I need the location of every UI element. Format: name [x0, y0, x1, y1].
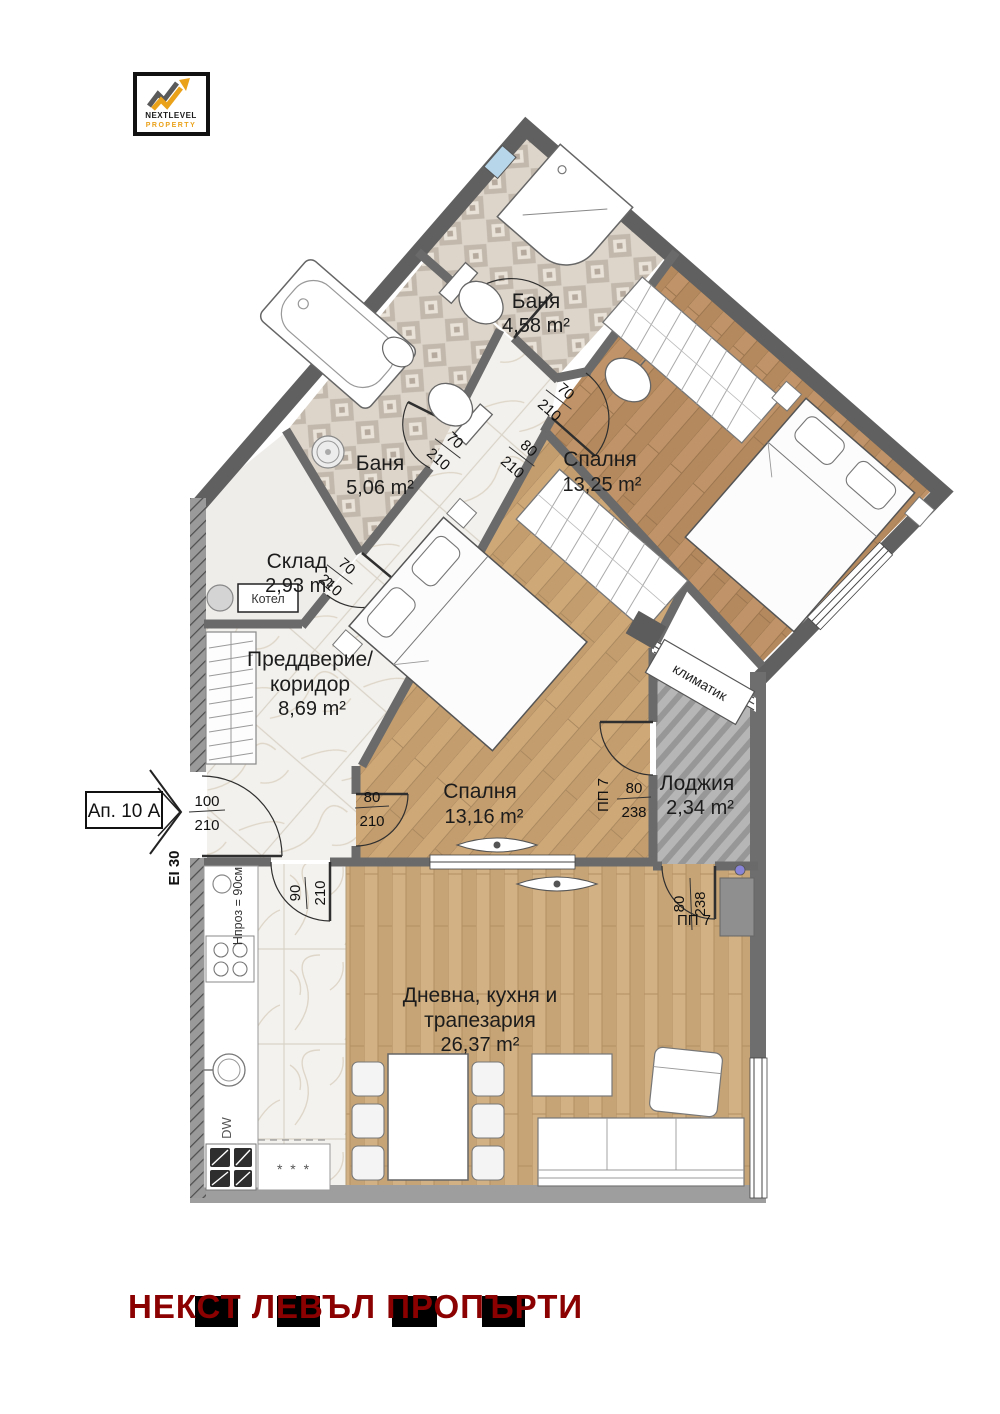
- apartment-label: Ап. 10 А: [88, 801, 161, 822]
- fridge-label: * * *: [277, 1161, 311, 1177]
- pp7-label-2: ПП 7: [677, 912, 711, 929]
- logo-graphic: NEXTLEVEL PROPERTY: [137, 76, 206, 132]
- hall-area: 8,69 m²: [278, 698, 346, 720]
- living-name-1: Дневна, кухня и: [403, 984, 558, 1007]
- svg-text:100: 100: [194, 793, 219, 810]
- bath1-area: 4,58 m²: [502, 315, 570, 337]
- hall-name-1: Преддверие/: [247, 648, 373, 671]
- dishwasher-label: DW: [219, 1116, 234, 1138]
- living-window: [750, 1058, 767, 1198]
- washing-machine-icon: [312, 436, 344, 468]
- bedroom2-area: 13,16 m²: [445, 806, 524, 828]
- svg-text:210: 210: [359, 813, 384, 830]
- outdoor-unit: [720, 878, 754, 936]
- living-area: 26,37 m²: [441, 1034, 520, 1056]
- bedroom2-name: Спалня: [443, 780, 516, 803]
- svg-text:210: 210: [194, 817, 219, 834]
- loggia-name: Лоджия: [660, 772, 734, 795]
- interior-glass: [430, 855, 575, 869]
- svg-text:90: 90: [287, 885, 304, 902]
- svg-text:238: 238: [621, 804, 646, 821]
- living-name-2: трапезария: [424, 1009, 536, 1032]
- logo-brand-line2: PROPERTY: [146, 122, 197, 129]
- stove-icon: [206, 1144, 256, 1190]
- pp7-label-1: ПП 7: [595, 778, 612, 812]
- logo: NEXTLEVEL PROPERTY: [133, 72, 210, 136]
- entrance-callout: Ап. 10 А EI 30: [86, 770, 183, 886]
- armchair: [649, 1047, 723, 1118]
- hall-name-2: коридор: [270, 673, 350, 696]
- storage-area: 2,93 m²: [265, 575, 333, 597]
- hob-icon: [206, 936, 254, 982]
- bath2-area: 5,06 m²: [346, 477, 414, 499]
- coffee-table: [532, 1054, 612, 1096]
- svg-text:80: 80: [364, 789, 381, 806]
- dim-loggia2-w: 80: [671, 896, 688, 913]
- floor-plan: Котел: [0, 0, 1000, 1414]
- fire-rating-label: EI 30: [166, 850, 183, 885]
- storage-name: Склад: [267, 550, 328, 573]
- footer-brand: НЕКСТ ЛЕВЪЛ ПРОПЪРТИ: [0, 1288, 1000, 1338]
- svg-text:80: 80: [626, 780, 643, 797]
- drain: [735, 865, 745, 875]
- entrance-opening: [189, 772, 207, 858]
- footer-brand-text: НЕКСТ ЛЕВЪЛ ПРОПЪРТИ: [128, 1288, 583, 1326]
- dining-set: [352, 1054, 504, 1180]
- loggia-area: 2,34 m²: [666, 797, 734, 819]
- bedroom1-area: 13,25 m²: [563, 474, 642, 496]
- worktop-note: Hпроз = 90см: [231, 867, 245, 945]
- dining-table: [388, 1054, 468, 1180]
- bedroom1-name: Спалня: [563, 448, 636, 471]
- bath2-name: Баня: [356, 452, 404, 475]
- logo-brand-line1: NEXTLEVEL: [145, 111, 197, 120]
- svg-text:210: 210: [312, 880, 329, 905]
- bath1-name: Баня: [512, 290, 560, 313]
- sofa: [538, 1118, 744, 1186]
